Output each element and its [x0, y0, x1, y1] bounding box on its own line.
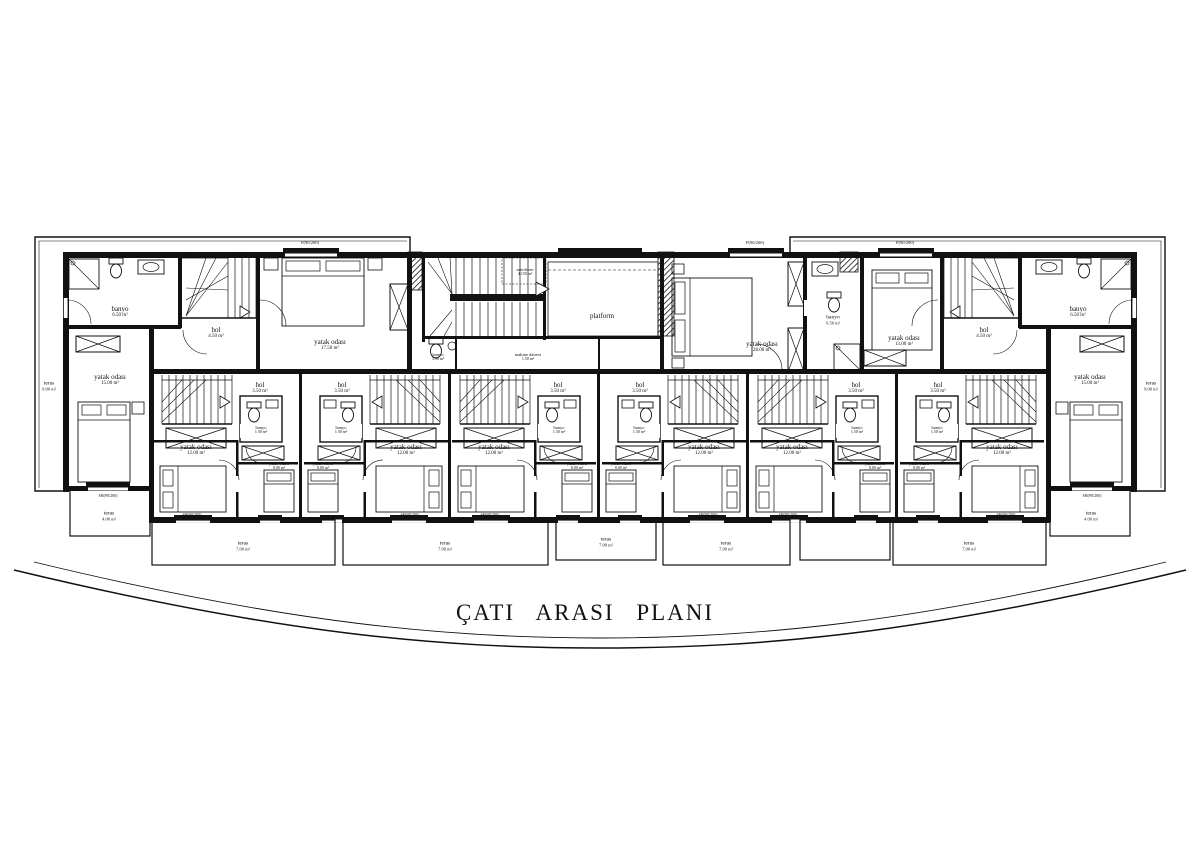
- room-label-platform: platform: [590, 312, 614, 320]
- central-stairs-icon: [428, 252, 549, 336]
- room-label-module-bedroom-large: yatak odası12.00 m²: [688, 443, 720, 457]
- double-bed-icon: [376, 466, 442, 512]
- wardrobe-icon: [616, 446, 658, 460]
- toilet-icon: [843, 402, 857, 422]
- room-label-bedroom-28: yatak odası28.00 m²: [746, 340, 778, 354]
- room-label-module-hol: hol3.50 m²: [334, 381, 349, 395]
- wardrobe-icon: [1080, 336, 1124, 352]
- room-label-bedroom-17: yatak odası17.50 m²: [314, 338, 346, 352]
- toilet-icon: [341, 402, 355, 422]
- module-graphics: [154, 375, 298, 523]
- toilet-icon: [109, 258, 123, 278]
- stairs-icon: [668, 375, 738, 424]
- shower-icon: [69, 259, 99, 289]
- wardrobe-icon: [914, 446, 956, 460]
- wardrobe-icon: [318, 446, 360, 460]
- plan-title: ÇATI ARASI PLANI: [456, 600, 714, 626]
- double-bed-icon: [672, 278, 752, 356]
- double-bed-icon: [756, 466, 822, 512]
- floor-plan-sheet: teras9.00 m² banyo6.50 m² hol4.50 m² yat…: [0, 0, 1200, 848]
- room-label-module-hol: hol3.50 m²: [848, 381, 863, 395]
- toilet-icon: [247, 402, 261, 422]
- room-label-hol-right: hol4.50 m²: [976, 326, 991, 340]
- module-graphics: [750, 375, 894, 523]
- terrace-label-front-5: teras7.00 m²: [962, 540, 976, 551]
- stairs-icon: [758, 375, 828, 424]
- room-label-module-bedroom-large: yatak odası12.00 m²: [478, 443, 510, 457]
- door-tag-module: SH(90/200): [401, 512, 420, 517]
- single-bed-icon: [562, 470, 592, 512]
- window-tag-left: P(90/200): [301, 240, 319, 245]
- toilet-icon: [827, 292, 841, 312]
- shower-icon: [1101, 259, 1131, 289]
- room-label-module-bedroom-small: yatak odası8.00 m²: [269, 461, 289, 471]
- wardrobe-icon: [838, 446, 880, 460]
- door-tag-right-end: SH(90/200): [1083, 493, 1102, 498]
- room-label-module-banyo: banyo1.50 m²: [255, 425, 267, 435]
- door-tag-module: SH(90/200): [481, 512, 500, 517]
- room-label-hol-left: hol4.50 m²: [208, 326, 223, 340]
- room-label-module-hol: hol3.50 m²: [632, 381, 647, 395]
- stairs-icon: [162, 375, 232, 424]
- walls-layer: [63, 248, 1137, 523]
- single-bed-icon: [860, 470, 890, 512]
- terrace-label-side-right: teras4.00 m²: [1084, 510, 1098, 521]
- room-label-module-banyo: banyo1.50 m²: [335, 425, 347, 435]
- room-label-module-hol: hol3.50 m²: [252, 381, 267, 395]
- module-graphics: [304, 375, 448, 523]
- toilet-icon: [639, 402, 653, 422]
- wardrobe-icon: [390, 284, 408, 330]
- room-label-banyo-center: banyo3.50 m²: [432, 352, 444, 362]
- stairs-icon: [370, 375, 440, 424]
- stairs-icon: [944, 252, 1020, 318]
- room-label-module-banyo: banyo1.50 m²: [633, 425, 645, 435]
- double-bed-icon: [972, 466, 1038, 512]
- room-label-module-bedroom-large: yatak odası12.00 m²: [986, 443, 1018, 457]
- terrace-label-front-4: teras7.00 m²: [719, 540, 733, 551]
- window-tag-center: P(90/200): [746, 240, 764, 245]
- room-label-module-hol: hol3.50 m²: [550, 381, 565, 395]
- room-label-module-bedroom-large: yatak odası12.00 m²: [390, 443, 422, 457]
- room-label-bedroom-15-right: yatak odası15.00 m²: [1074, 373, 1106, 387]
- room-label-module-bedroom-large: yatak odası12.00 m²: [180, 443, 212, 457]
- room-label-teras-left: teras9.00 m²: [42, 380, 56, 391]
- sink-icon: [812, 262, 838, 276]
- stairs-icon: [460, 375, 530, 424]
- double-bed-icon: [282, 258, 364, 326]
- room-label-teras-right: teras9.00 m²: [1144, 380, 1158, 391]
- stairs-icon: [966, 375, 1036, 424]
- toilet-icon: [937, 402, 951, 422]
- double-bed-icon: [674, 466, 740, 512]
- room-label-module-banyo: banyo1.50 m²: [553, 425, 565, 435]
- terrace-label-side-left: teras4.00 m²: [102, 510, 116, 521]
- room-label-banyo2-center: banyo6.50 m²: [826, 314, 840, 325]
- wardrobe-icon: [788, 262, 804, 306]
- terrace-label-front-3: teras7.00 m²: [599, 536, 613, 547]
- terrace-label-front-2: teras7.00 m²: [438, 540, 452, 551]
- module-graphics: [900, 375, 1044, 523]
- single-bed-icon: [904, 470, 934, 512]
- room-label-module-hol: hol3.50 m²: [930, 381, 945, 395]
- double-bed-icon: [160, 466, 226, 512]
- double-bed-icon: [1070, 402, 1122, 482]
- module-graphics: [452, 375, 596, 523]
- wardrobe-icon: [864, 350, 906, 366]
- end-unit-right: [790, 237, 1165, 536]
- door-tag-module: SH(90/200): [779, 512, 798, 517]
- room-label-banyo-left: banyo6.50 m²: [111, 305, 128, 319]
- end-unit-left: [35, 237, 410, 536]
- double-bed-icon: [458, 466, 524, 512]
- single-bed-icon: [308, 470, 338, 512]
- wardrobe-icon: [76, 336, 120, 352]
- stairs-icon: [180, 252, 256, 318]
- double-bed-icon: [78, 402, 130, 482]
- room-label-module-banyo: banyo1.50 m²: [851, 425, 863, 435]
- terrace-label-front-1: teras7.00 m²: [236, 540, 250, 551]
- room-label-module-bedroom-large: yatak odası12.00 m²: [776, 443, 808, 457]
- room-label-module-bedroom-small: yatak odası8.00 m²: [865, 461, 885, 471]
- room-label-module-bedroom-small: yatak odası8.00 m²: [567, 461, 587, 471]
- room-label-module-bedroom-small: yatak odası8.00 m²: [611, 461, 631, 471]
- wardrobe-icon: [242, 446, 284, 460]
- door-tag-module: SH(90/200): [183, 512, 202, 517]
- shower-icon: [834, 344, 860, 370]
- room-label-module-bedroom-small: yatak odası8.00 m²: [909, 461, 929, 471]
- wardrobe-icon: [540, 446, 582, 460]
- sink-icon: [138, 260, 164, 274]
- door-tag-left-end: SH(90/200): [99, 493, 118, 498]
- toilet-icon: [545, 402, 559, 422]
- room-label-merdiven: merdiven4.150 m²: [517, 267, 534, 277]
- module-graphics: [602, 375, 746, 523]
- single-bed-icon: [264, 470, 294, 512]
- sink-icon: [1036, 260, 1062, 274]
- room-label-module-banyo: banyo1.50 m²: [931, 425, 943, 435]
- room-label-bedroom-15-left: yatak odası15.00 m²: [94, 373, 126, 387]
- floor-plan-graphics: [0, 0, 1200, 848]
- door-tag-module: SH(90/200): [699, 512, 718, 517]
- toilet-icon: [1077, 258, 1091, 278]
- window-tag-right: P(90/200): [896, 240, 914, 245]
- room-label-makine-dairesi: makine dairesi1.50 m²: [515, 352, 541, 362]
- room-label-banyo-right: banyo6.50 m²: [1069, 305, 1086, 319]
- room-label-bedroom-13: yatak odası13.00 m²: [888, 334, 920, 348]
- door-tag-module: SH(90/200): [997, 512, 1016, 517]
- single-bed-icon: [606, 470, 636, 512]
- room-label-module-bedroom-small: yatak odası8.00 m²: [313, 461, 333, 471]
- wardrobe-icon: [788, 328, 804, 372]
